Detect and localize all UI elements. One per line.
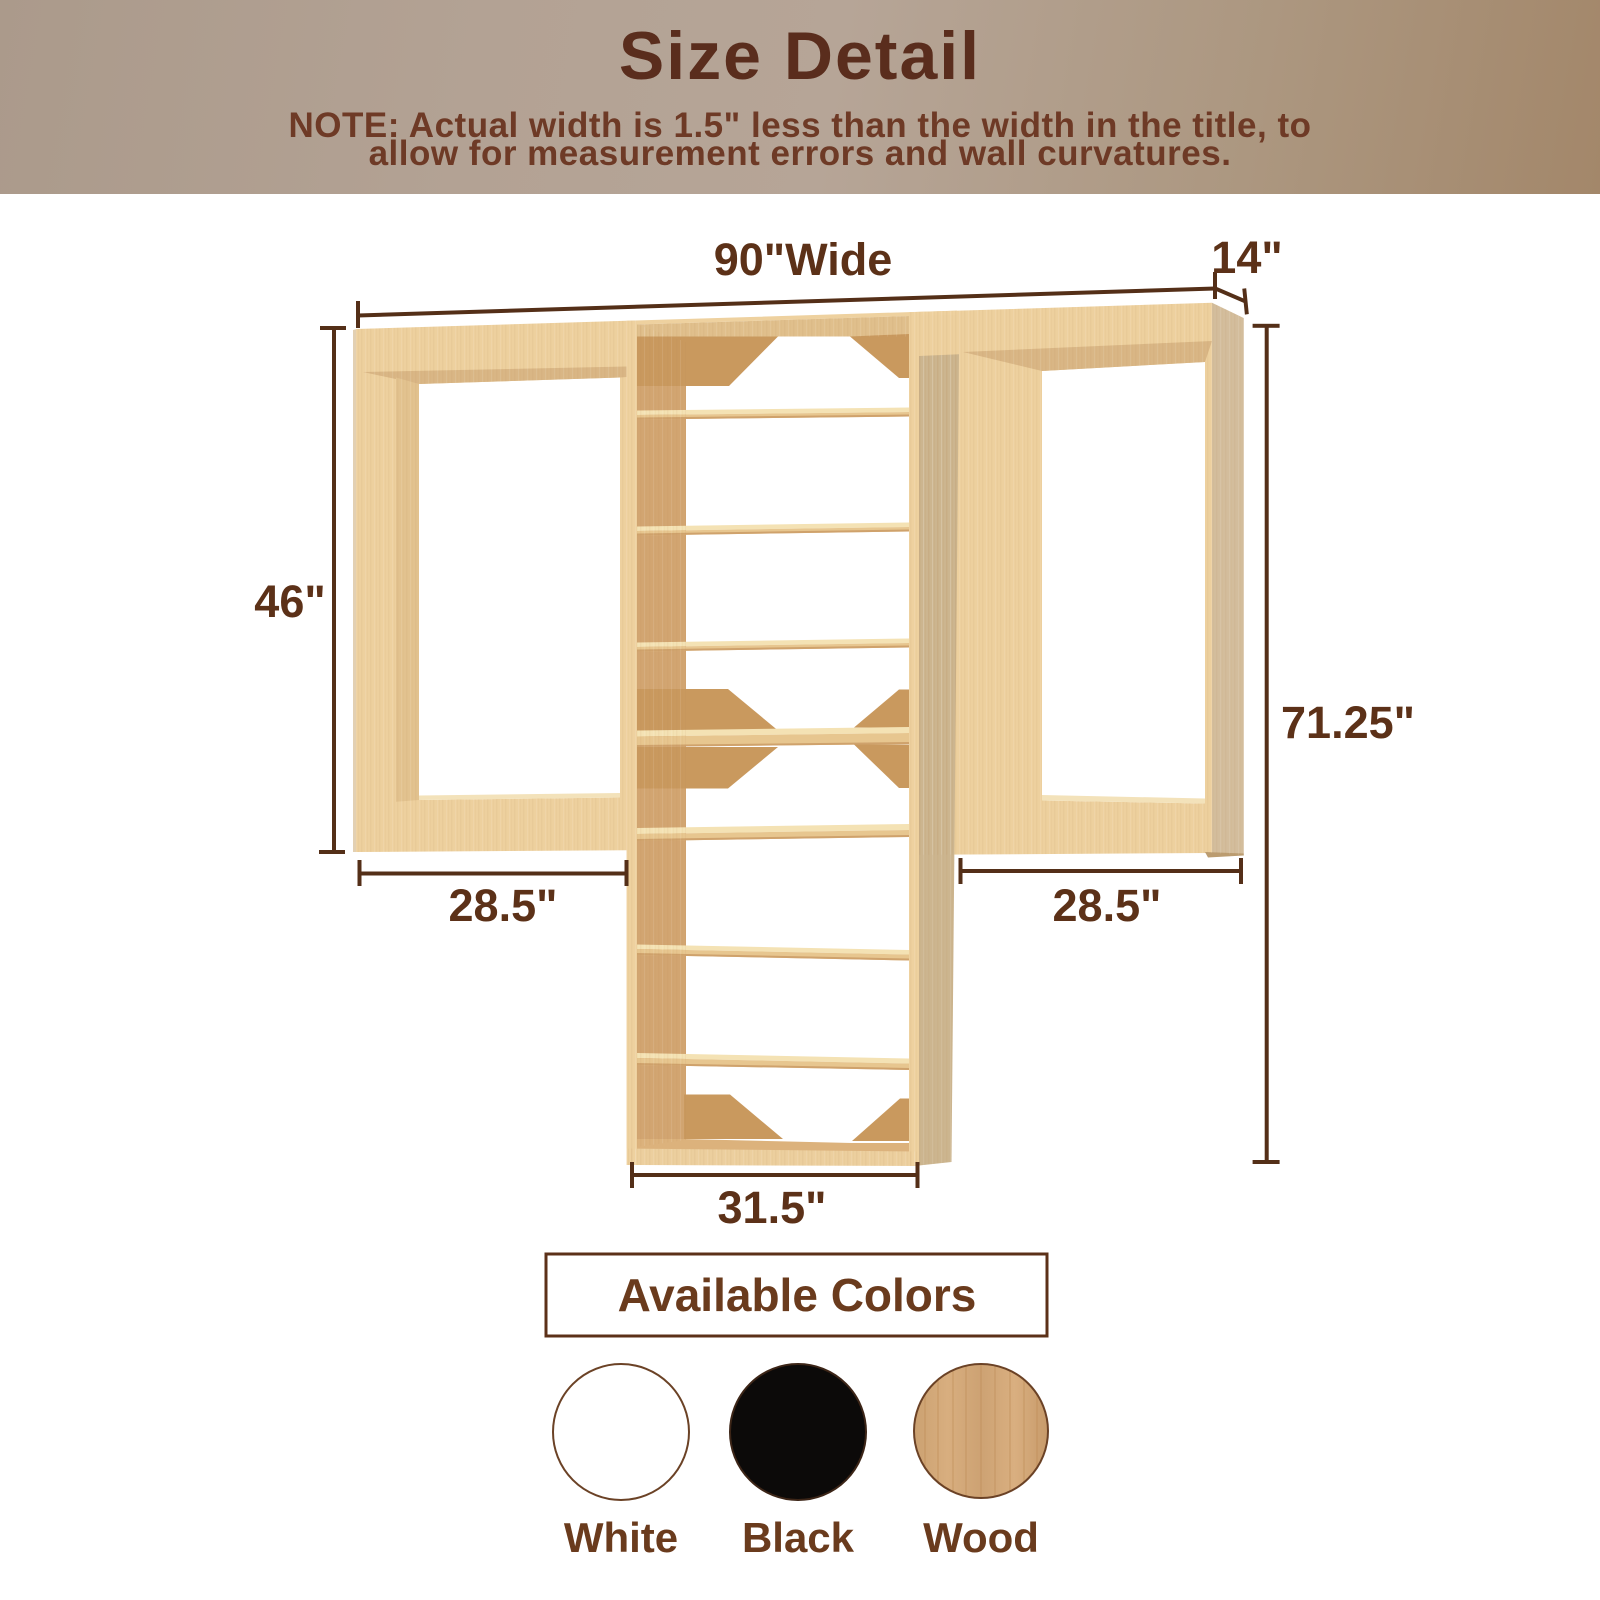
svg-text:White: White — [564, 1514, 678, 1561]
svg-text:71.25": 71.25" — [1281, 697, 1415, 748]
svg-text:Wood: Wood — [923, 1514, 1039, 1561]
svg-text:14": 14" — [1211, 232, 1282, 283]
svg-text:28.5": 28.5" — [449, 880, 558, 931]
svg-text:31.5": 31.5" — [718, 1182, 827, 1233]
svg-text:Available Colors: Available Colors — [618, 1269, 977, 1321]
svg-text:28.5": 28.5" — [1053, 880, 1162, 931]
svg-text:46": 46" — [254, 576, 325, 627]
svg-text:90"Wide: 90"Wide — [714, 234, 892, 285]
svg-text:Black: Black — [742, 1514, 855, 1561]
